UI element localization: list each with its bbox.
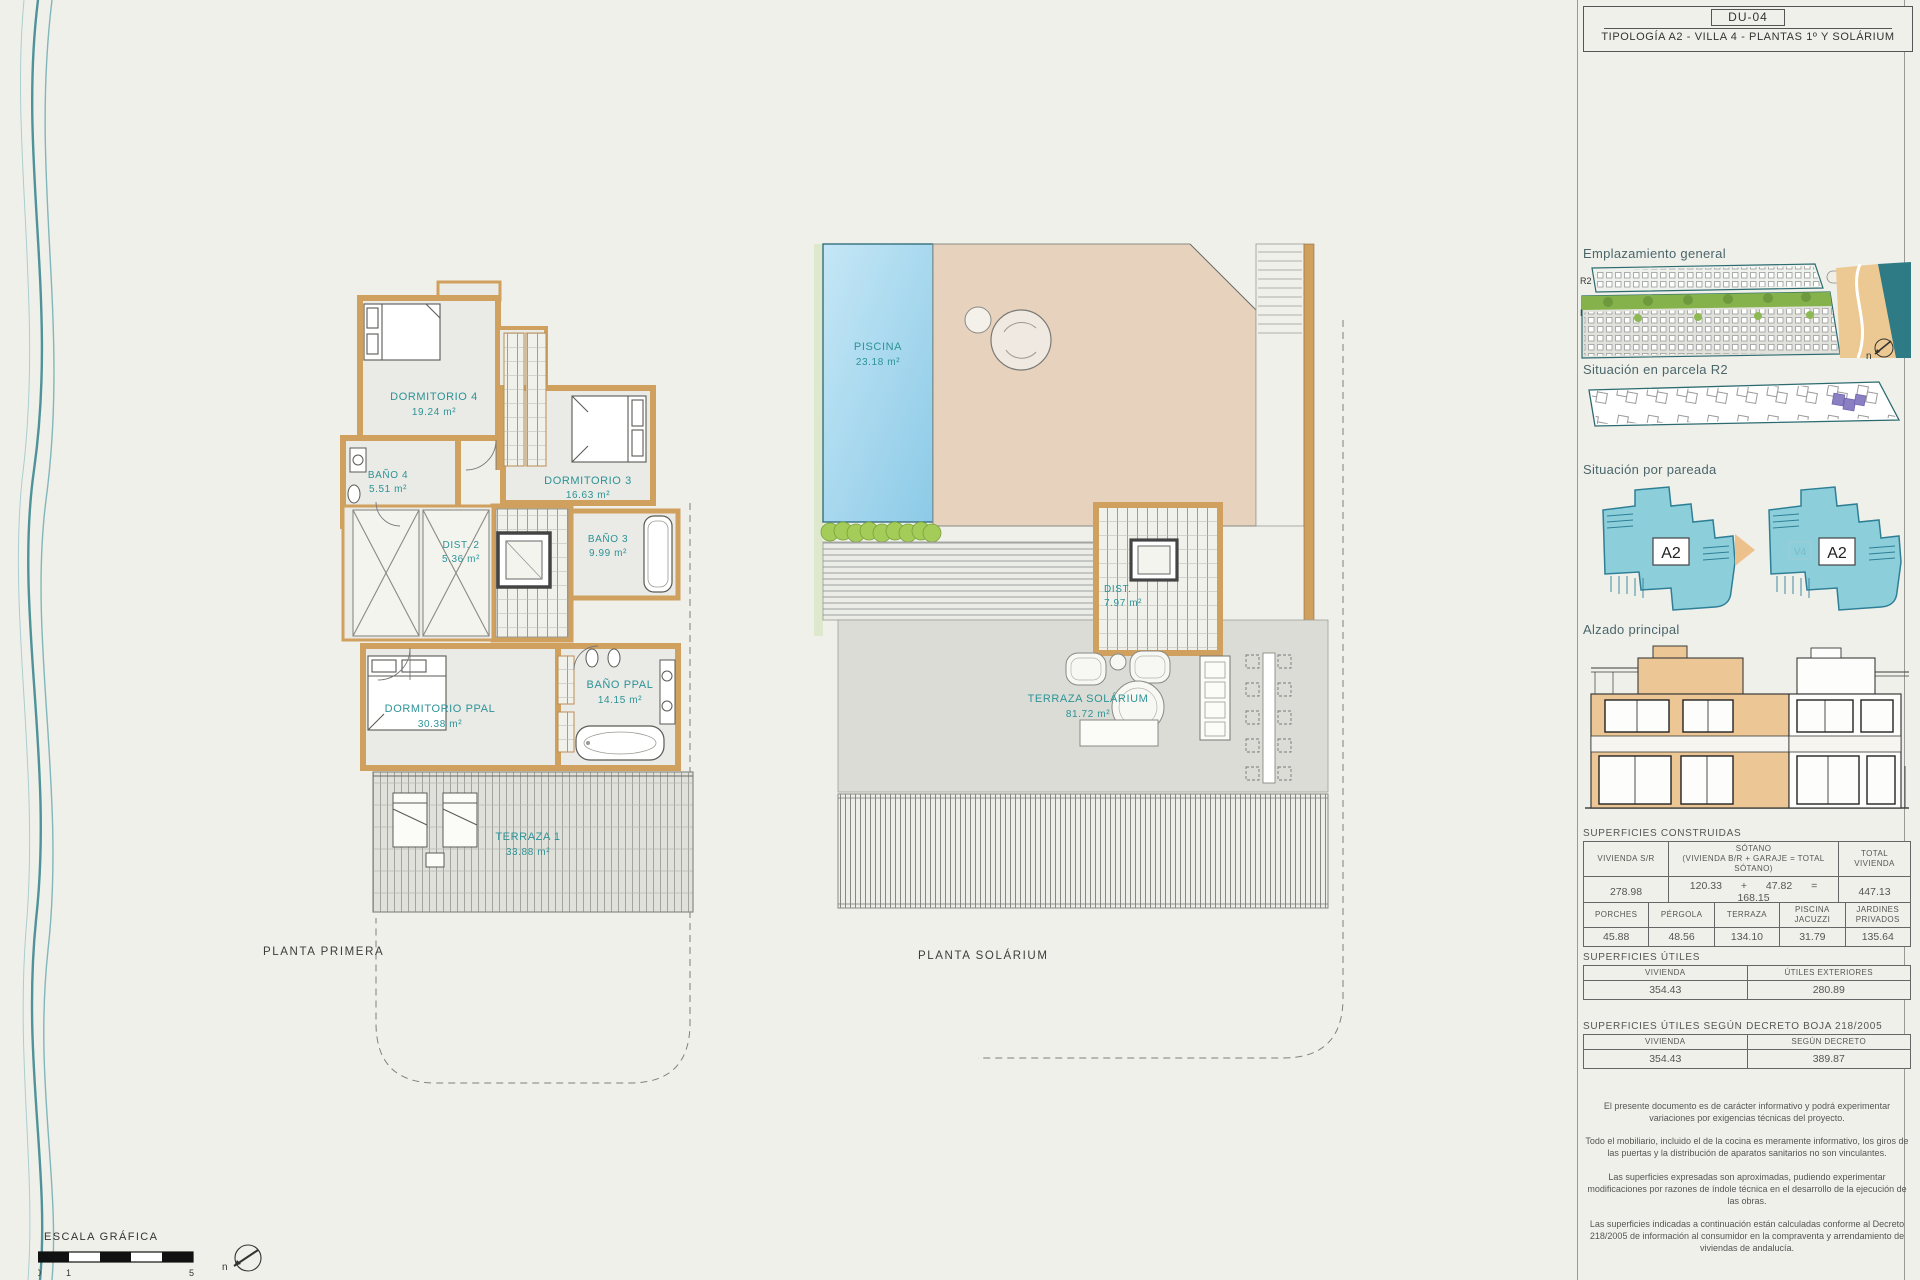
scale-bar: 0 1 5 bbox=[38, 1248, 218, 1280]
t1-sotano-a: 120.33 bbox=[1690, 880, 1722, 892]
t1-plus-sign: + bbox=[1741, 880, 1747, 892]
plan-title-solarium: PLANTA SOLÁRIUM bbox=[918, 950, 1049, 962]
disclaimer-2: Todo el mobiliario, incluido el de la co… bbox=[1583, 1135, 1911, 1159]
disclaimer-4: Las superficies indicadas a continuación… bbox=[1583, 1218, 1911, 1254]
elevator-icon bbox=[498, 533, 550, 587]
t1-header-sotano: SÓTANO (VIVIENDA B/R + GARAJE = TOTAL SÓ… bbox=[1669, 842, 1839, 877]
plan-sheet: DORMITORIO 4 19.24 m² BAÑO 4 5.51 m² DOR… bbox=[0, 0, 1920, 1280]
scale-tick-5: 5 bbox=[189, 1268, 194, 1278]
pergola-slats bbox=[823, 542, 1096, 620]
heading-construidas: SUPERFICIES CONSTRUIDAS bbox=[1583, 828, 1741, 839]
room-area-terraza-solarium: 81.72 m² bbox=[1066, 709, 1110, 720]
utiles-value-0: 354.43 bbox=[1584, 981, 1748, 1000]
room-label-dorm3: DORMITORIO 3 bbox=[544, 475, 632, 487]
sheet-code: DU-04 bbox=[1711, 9, 1785, 26]
stair-core bbox=[1096, 505, 1220, 653]
heading-alzado: Alzado principal bbox=[1583, 622, 1680, 637]
room-area-piscina: 23.18 m² bbox=[856, 357, 900, 368]
t1-sotano-b: 47.82 bbox=[1766, 880, 1792, 892]
room-label-dormppal: DORMITORIO PPAL bbox=[385, 703, 496, 715]
room-label-banoppal: BAÑO PPAL bbox=[587, 678, 654, 691]
room-area-banoppal: 14.15 m² bbox=[598, 695, 642, 706]
pareada-left-label: A2 bbox=[1661, 545, 1681, 562]
utiles-table: VIVIENDA ÚTILES EXTERIORES 354.43 280.89 bbox=[1583, 965, 1911, 1000]
disclaimer-block: El presente documento es de carácter inf… bbox=[1583, 1100, 1911, 1265]
construidas-table-1: VIVIENDA S/R SÓTANO (VIVIENDA B/R + GARA… bbox=[1583, 841, 1911, 908]
t2-header-2: TERRAZA bbox=[1714, 903, 1779, 928]
side-stairs bbox=[1256, 244, 1314, 652]
heading-utiles: SUPERFICIES ÚTILES bbox=[1583, 952, 1700, 963]
room-area-dorm4: 19.24 m² bbox=[412, 407, 456, 418]
footprint-left: A2 bbox=[1603, 487, 1735, 610]
t2-header-3: PISCINA JACUZZI bbox=[1780, 903, 1845, 928]
shoreline-waves-decoration bbox=[0, 0, 90, 1280]
heading-pareada: Situación por pareada bbox=[1583, 462, 1717, 477]
heading-parcela: Situación en parcela R2 bbox=[1583, 362, 1728, 377]
patio-area bbox=[933, 244, 1256, 526]
t2-value-4: 135.64 bbox=[1845, 928, 1910, 947]
sidebar-divider-line bbox=[1577, 0, 1578, 1280]
hedge-icons bbox=[821, 522, 941, 542]
room-area-dist2: 5.36 m² bbox=[442, 554, 480, 565]
t1-header-vivienda: VIVIENDA S/R bbox=[1584, 842, 1669, 877]
room-area-dormppal: 30.38 m² bbox=[418, 719, 462, 730]
north-arrow-icon: n bbox=[220, 1238, 276, 1280]
plan-title-primera: PLANTA PRIMERA bbox=[263, 946, 384, 958]
villa-left-elevation bbox=[1591, 646, 1789, 808]
utiles-value-1: 280.89 bbox=[1747, 981, 1911, 1000]
railing-slats bbox=[838, 794, 1328, 908]
site-strip-r1 bbox=[1582, 292, 1840, 358]
decreto-header-1: SEGÚN DECRETO bbox=[1747, 1035, 1911, 1050]
room-area-dorm3: 16.63 m² bbox=[566, 490, 610, 501]
t2-value-2: 134.10 bbox=[1714, 928, 1779, 947]
room-area-terraza1: 33.88 m² bbox=[506, 847, 550, 858]
t2-value-1: 48.56 bbox=[1649, 928, 1714, 947]
decreto-header-0: VIVIENDA bbox=[1584, 1035, 1748, 1050]
decreto-table: VIVIENDA SEGÚN DECRETO 354.43 389.87 bbox=[1583, 1034, 1911, 1069]
room-label-piscina: PISCINA bbox=[854, 341, 902, 353]
room-label-bano3: BAÑO 3 bbox=[588, 532, 628, 545]
room-label-dist2: DIST. 2 bbox=[443, 540, 480, 551]
bed-icon-dorm4 bbox=[364, 304, 440, 360]
t2-value-3: 31.79 bbox=[1780, 928, 1845, 947]
room-label-bano4: BAÑO 4 bbox=[368, 468, 408, 481]
villa-right-elevation bbox=[1789, 648, 1909, 808]
site-plan-map: R2 R1 n bbox=[1578, 262, 1911, 362]
decreto-value-0: 354.43 bbox=[1584, 1050, 1748, 1069]
decreto-value-1: 389.87 bbox=[1747, 1050, 1911, 1069]
floor-plan-solarium: PISCINA 23.18 m² bbox=[808, 228, 1368, 1108]
floor-plan-primera: DORMITORIO 4 19.24 m² BAÑO 4 5.51 m² DOR… bbox=[258, 278, 758, 1108]
bed-icon-dorm3 bbox=[572, 396, 646, 462]
room-area-dist3: 7.97 m² bbox=[1104, 598, 1142, 609]
t1-header-total: TOTAL VIVIENDA bbox=[1839, 842, 1911, 877]
t2-header-1: PÉRGOLA bbox=[1649, 903, 1714, 928]
room-label-terraza-solarium: TERRAZA SOLÁRIUM bbox=[1028, 692, 1149, 705]
room-label-dist3: DIST. bbox=[1104, 584, 1131, 595]
north-label: n bbox=[1866, 351, 1872, 362]
pareada-right-label: A2 bbox=[1827, 545, 1847, 562]
planter-strip bbox=[814, 244, 823, 636]
pareada-diagram: A2 V4 A2 bbox=[1583, 476, 1911, 628]
t2-value-0: 45.88 bbox=[1584, 928, 1649, 947]
room-area-bano4: 5.51 m² bbox=[369, 484, 407, 495]
site-strip-r2 bbox=[1592, 264, 1853, 292]
heading-decreto: SUPERFICIES ÚTILES SEGÚN DECRETO BOJA 21… bbox=[1583, 1021, 1882, 1032]
north-label: n bbox=[222, 1262, 228, 1273]
footprint-right: V4 A2 bbox=[1769, 487, 1901, 610]
pareada-ghost-label: V4 bbox=[1794, 547, 1807, 558]
utiles-header-1: ÚTILES EXTERIORES bbox=[1747, 966, 1911, 981]
scale-tick-0: 0 bbox=[38, 1268, 41, 1278]
room-label-terraza1: TERRAZA 1 bbox=[495, 831, 560, 843]
pareada-arrow-icon bbox=[1735, 534, 1755, 566]
t1-header-sotano-sub: (VIVIENDA B/R + GARAJE = TOTAL SÓTANO) bbox=[1682, 854, 1824, 873]
room-label-dorm4: DORMITORIO 4 bbox=[390, 391, 478, 403]
t1-header-sotano-main: SÓTANO bbox=[1736, 844, 1772, 853]
pool-area bbox=[823, 244, 933, 522]
sheet-title: TIPOLOGÍA A2 - VILLA 4 - PLANTAS 1º Y SO… bbox=[1601, 31, 1894, 43]
disclaimer-3: Las superficies expresadas son aproximad… bbox=[1583, 1171, 1911, 1207]
utiles-header-0: VIVIENDA bbox=[1584, 966, 1748, 981]
scale-tick-1: 1 bbox=[66, 1268, 71, 1278]
counter-icon bbox=[1200, 656, 1230, 740]
elevation-drawing bbox=[1583, 636, 1911, 822]
room-area-bano3: 9.99 m² bbox=[589, 548, 627, 559]
bathtub-icon-bano3 bbox=[644, 516, 672, 592]
title-block-rule bbox=[1604, 28, 1893, 29]
parcela-strip-map bbox=[1583, 380, 1911, 430]
heading-emplazamiento: Emplazamiento general bbox=[1583, 246, 1726, 261]
t1-equals-sign: = bbox=[1811, 880, 1817, 892]
t2-header-0: PORCHES bbox=[1584, 903, 1649, 928]
scale-label: ESCALA GRÁFICA bbox=[44, 1231, 158, 1243]
disclaimer-1: El presente documento es de carácter inf… bbox=[1583, 1100, 1911, 1124]
bathtub-icon-banoppal bbox=[576, 726, 664, 760]
terrace-solarium-area bbox=[838, 620, 1328, 792]
title-block: DU-04 TIPOLOGÍA A2 - VILLA 4 - PLANTAS 1… bbox=[1583, 6, 1913, 52]
t2-header-4: JARDINES PRIVADOS bbox=[1845, 903, 1910, 928]
site-label-r2: R2 bbox=[1580, 276, 1592, 286]
construidas-table-2: PORCHES PÉRGOLA TERRAZA PISCINA JACUZZI … bbox=[1583, 902, 1911, 947]
